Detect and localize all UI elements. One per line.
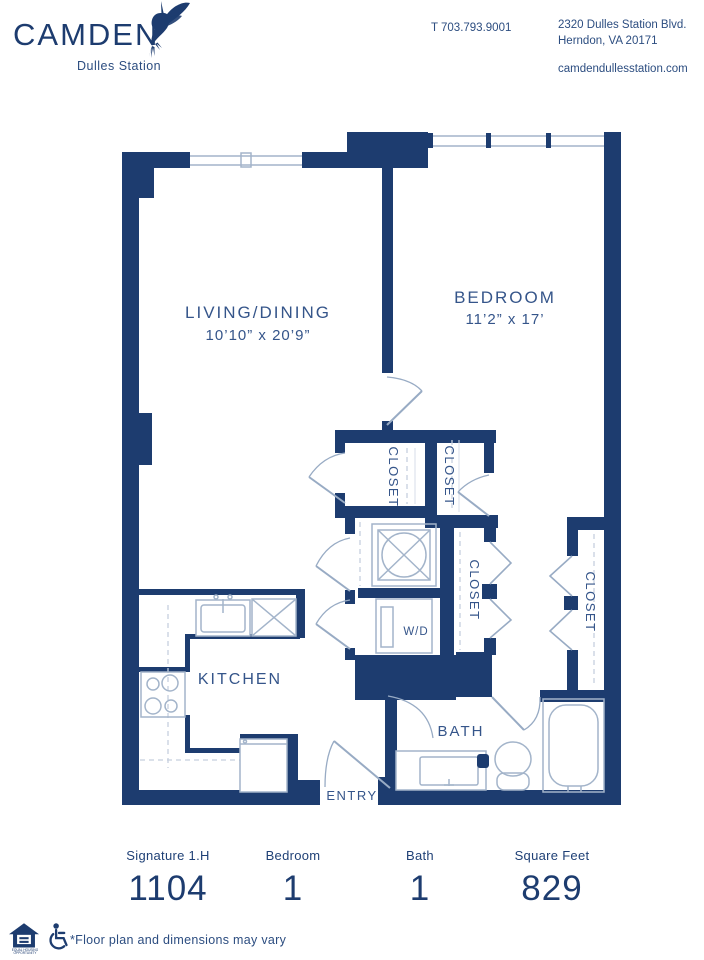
stat-label: Bath — [355, 848, 485, 863]
bath-vanity — [396, 751, 486, 790]
walls — [122, 132, 621, 805]
stat-square-feet: Square Feet 829 — [487, 848, 617, 909]
bedroom-closet-label: CLOSET — [583, 571, 598, 632]
stat-bedroom: Bedroom 1 — [228, 848, 358, 909]
floor-plan-flyer: CAMDEN Dulles Station T 703.793.9001 232… — [0, 0, 704, 960]
equal-housing-icon — [9, 923, 39, 949]
refrigerator — [240, 739, 287, 792]
closet-a-right-door — [458, 475, 489, 516]
bathtub — [543, 699, 604, 792]
bath-label: BATH — [438, 723, 485, 740]
floor-plan-drawing: LIVING/DINING 10’10” x 20’9” BEDROOM 11’… — [0, 0, 704, 960]
entry-door — [325, 741, 390, 788]
washer-dryer-door — [316, 600, 350, 649]
stat-value: 1104 — [103, 869, 233, 909]
stat-value: 829 — [487, 869, 617, 909]
bedroom-door — [387, 377, 422, 425]
dishwasher — [252, 599, 296, 636]
stat-bath: Bath 1 — [355, 848, 485, 909]
equal-housing-caption: EQUAL HOUSING OPPORTUNITY — [8, 949, 42, 956]
closet-a-left-label: CLOSET — [386, 446, 401, 507]
stat-value: 1 — [355, 869, 485, 909]
living-window — [190, 153, 302, 167]
stat-label: Signature 1.H — [103, 848, 233, 863]
living-room-label: LIVING/DINING — [185, 303, 331, 322]
stove — [141, 672, 185, 717]
bedroom-dimensions: 11’2” x 17’ — [465, 311, 544, 328]
mechanical-closet-door — [316, 538, 350, 591]
closet-a-right-label: CLOSET — [442, 445, 457, 506]
kitchen-label: KITCHEN — [198, 671, 282, 688]
stat-label: Square Feet — [487, 848, 617, 863]
kitchen-sink — [196, 595, 250, 636]
hall-closet-label: CLOSET — [467, 559, 482, 620]
toilet — [495, 742, 531, 790]
hvac-unit — [372, 524, 436, 586]
stat-value: 1 — [228, 869, 358, 909]
disclaimer-text: *Floor plan and dimensions may vary — [70, 933, 286, 947]
washer-dryer-label: W/D — [403, 626, 428, 638]
wheelchair-accessible-icon — [46, 922, 72, 952]
bedroom-label: BEDROOM — [454, 288, 556, 307]
bath-door — [492, 697, 540, 730]
vanity-fixture-block — [477, 754, 489, 768]
living-room-dimensions: 10’10” x 20’9” — [206, 327, 311, 344]
stat-plan-name: Signature 1.H 1104 — [103, 848, 233, 909]
entry-label: ENTRY — [326, 788, 377, 803]
stat-label: Bedroom — [228, 848, 358, 863]
bedroom-window — [428, 133, 604, 148]
